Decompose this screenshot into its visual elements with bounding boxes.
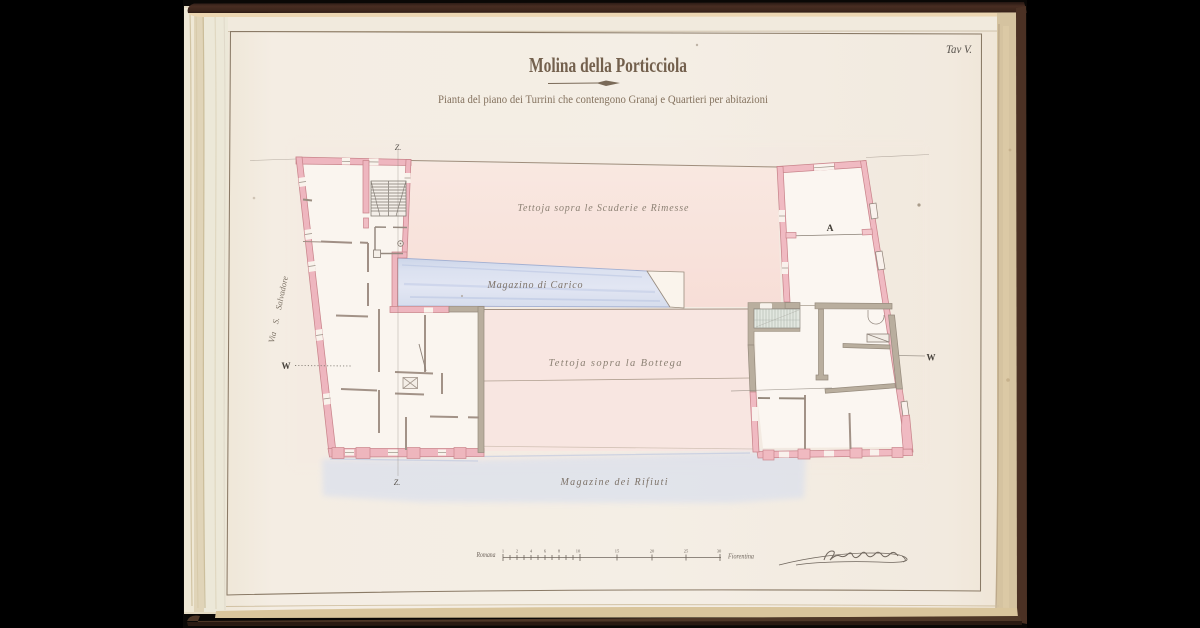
svg-text:Romana: Romana xyxy=(476,551,496,559)
svg-text:W: W xyxy=(927,353,936,363)
svg-text:15: 15 xyxy=(615,549,620,554)
svg-text:30: 30 xyxy=(717,549,722,554)
svg-text:W: W xyxy=(282,361,291,371)
svg-text:25: 25 xyxy=(684,549,689,554)
svg-text:Molina della Porticciola: Molina della Porticciola xyxy=(529,53,687,77)
svg-text:20: 20 xyxy=(650,549,655,554)
svg-text:Tav V.: Tav V. xyxy=(946,44,973,56)
svg-text:Tettoja sopra la Bottega: Tettoja sopra la Bottega xyxy=(549,358,682,369)
svg-text:1: 1 xyxy=(502,549,504,554)
svg-text:A: A xyxy=(827,224,834,234)
svg-text:2: 2 xyxy=(516,549,518,554)
svg-text:Magazino di Carico: Magazino di Carico xyxy=(487,280,583,291)
svg-text:Magazine dei Rifiuti: Magazine dei Rifiuti xyxy=(560,477,668,488)
svg-text:10: 10 xyxy=(576,549,581,554)
svg-text:Z.: Z. xyxy=(394,478,400,487)
svg-text:Pianta del piano dei Turrini c: Pianta del piano dei Turrini che conteng… xyxy=(438,92,769,106)
svg-text:Fiorentina: Fiorentina xyxy=(727,553,754,561)
svg-text:Z.: Z. xyxy=(395,143,401,152)
svg-text:Tettoja sopra le Scuderie e Ri: Tettoja sopra le Scuderie e Rimesse xyxy=(518,203,690,214)
